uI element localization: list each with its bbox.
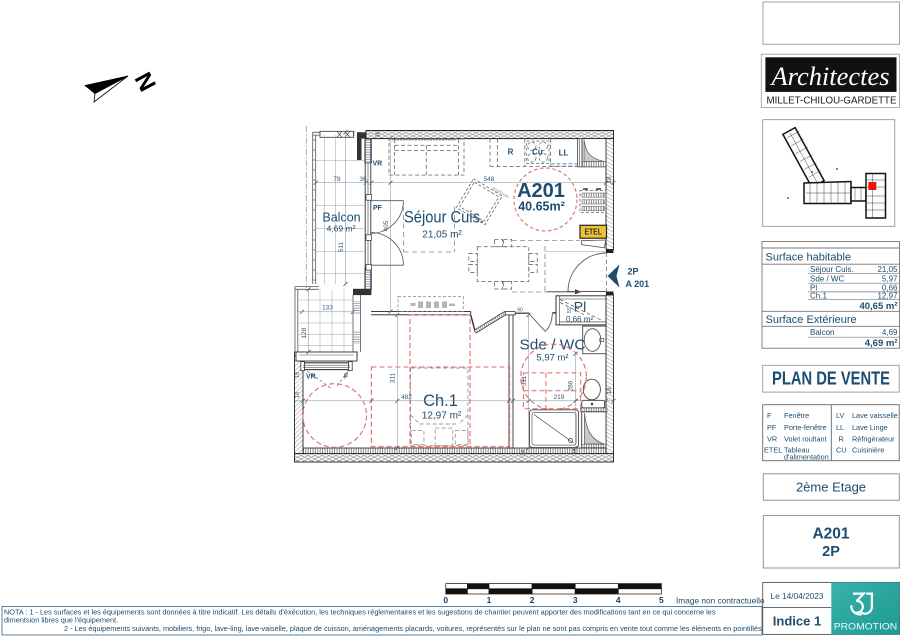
svg-text:78: 78 [333, 176, 341, 183]
svg-text:d'alimentation: d'alimentation [784, 453, 829, 462]
svg-text:133: 133 [322, 305, 333, 312]
svg-text:A 201: A 201 [626, 279, 650, 289]
svg-text:548: 548 [484, 176, 495, 183]
svg-text:18: 18 [606, 387, 613, 395]
svg-text:LL: LL [836, 423, 844, 432]
svg-text:A201: A201 [812, 526, 849, 543]
svg-text:36: 36 [359, 176, 367, 183]
svg-text:ETEL: ETEL [584, 228, 602, 237]
svg-text:311: 311 [521, 375, 528, 386]
svg-text:5,97: 5,97 [882, 275, 898, 284]
svg-text:21,05 m²: 21,05 m² [422, 230, 462, 241]
svg-text:21,05: 21,05 [877, 265, 898, 274]
svg-text:311: 311 [390, 372, 397, 383]
svg-text:3: 3 [573, 595, 578, 605]
svg-text:Indice 1: Indice 1 [773, 614, 821, 629]
svg-text:Sde / WC: Sde / WC [810, 275, 844, 284]
svg-text:R: R [508, 148, 514, 157]
svg-text:Pl: Pl [574, 299, 586, 315]
svg-text:Ch.1: Ch.1 [810, 291, 827, 300]
svg-text:2P: 2P [822, 544, 840, 560]
svg-text:Balcon: Balcon [810, 328, 834, 337]
svg-text:482: 482 [401, 394, 412, 401]
svg-text:1: 1 [487, 595, 492, 605]
svg-text:CU: CU [836, 446, 847, 455]
svg-text:PF: PF [767, 423, 777, 432]
svg-text:219: 219 [554, 394, 565, 401]
svg-text:LV: LV [836, 411, 845, 420]
svg-text:2P: 2P [628, 267, 639, 277]
svg-text:128: 128 [301, 327, 308, 338]
svg-text:4,69: 4,69 [882, 328, 898, 337]
svg-text:F: F [767, 411, 772, 420]
svg-text:40,65 m²: 40,65 m² [859, 301, 897, 312]
svg-text:Cu: Cu [532, 148, 543, 157]
svg-text:Cuisinière: Cuisinière [852, 446, 884, 455]
svg-text:Surface habitable: Surface habitable [766, 252, 852, 264]
svg-text:18: 18 [295, 392, 301, 398]
svg-text:0,66 m²: 0,66 m² [566, 315, 593, 324]
svg-text:Séjour Cuis.: Séjour Cuis. [404, 209, 484, 227]
svg-text:F: F [344, 374, 349, 381]
svg-text:VR: VR [306, 374, 316, 381]
svg-text:PF: PF [373, 205, 383, 212]
svg-text:PLAN DE VENTE: PLAN DE VENTE [772, 368, 890, 389]
svg-text:Architectes: Architectes [769, 62, 889, 91]
svg-text:Balcon: Balcon [322, 211, 360, 225]
svg-text:Réfrigérateur: Réfrigérateur [852, 435, 895, 444]
svg-text:2ème Etage: 2ème Etage [796, 480, 866, 495]
svg-text:R: R [839, 435, 844, 444]
svg-text:90: 90 [517, 307, 523, 313]
svg-text:MILLET-CHILOU-GARDETTE: MILLET-CHILOU-GARDETTE [767, 96, 897, 107]
svg-text:2 - Les équipements suivants,: 2 - Les équipements suivants, mobiliers,… [64, 624, 764, 633]
svg-text:Séjour Cuis.: Séjour Cuis. [810, 265, 854, 274]
svg-text:34: 34 [573, 449, 579, 455]
svg-text:5: 5 [659, 595, 664, 605]
svg-text:34: 34 [521, 450, 527, 456]
svg-text:55: 55 [567, 307, 573, 313]
svg-text:Image non contractuelle: Image non contractuelle [676, 596, 765, 606]
svg-text:Surface Extérieure: Surface Extérieure [766, 314, 857, 326]
svg-text:Lave Linge: Lave Linge [852, 423, 888, 432]
svg-text:12,97 m²: 12,97 m² [422, 411, 462, 422]
svg-text:5,97 m²: 5,97 m² [536, 353, 568, 364]
svg-text:Porte-fenêtre: Porte-fenêtre [784, 423, 827, 432]
svg-text:12,97: 12,97 [877, 291, 898, 300]
svg-text:40.65m²: 40.65m² [518, 200, 565, 214]
svg-text:Le 14/04/2023: Le 14/04/2023 [770, 591, 823, 601]
svg-text:36: 36 [376, 131, 382, 137]
svg-text:Lave vaisselle: Lave vaisselle [852, 411, 898, 420]
svg-text:Volet roultant: Volet roultant [784, 435, 827, 444]
svg-text:405: 405 [383, 220, 390, 231]
svg-text:Sde / WC: Sde / WC [520, 337, 586, 354]
svg-text:PROMOTION: PROMOTION [834, 621, 898, 632]
svg-text:VR: VR [767, 435, 777, 444]
svg-text:Fenêtre: Fenêtre [784, 411, 809, 420]
svg-text:2: 2 [530, 595, 535, 605]
svg-text:4,69 m²: 4,69 m² [865, 338, 898, 349]
svg-text:18: 18 [606, 176, 613, 184]
svg-text:0: 0 [443, 595, 448, 605]
svg-text:LL: LL [559, 149, 569, 158]
svg-text:511: 511 [338, 241, 345, 252]
svg-text:VR: VR [373, 161, 383, 168]
svg-text:4,69 m²: 4,69 m² [327, 224, 356, 234]
svg-text:4: 4 [616, 595, 621, 605]
svg-text:18: 18 [295, 372, 301, 378]
svg-text:ETEL: ETEL [764, 446, 782, 455]
svg-text:286: 286 [568, 380, 575, 391]
